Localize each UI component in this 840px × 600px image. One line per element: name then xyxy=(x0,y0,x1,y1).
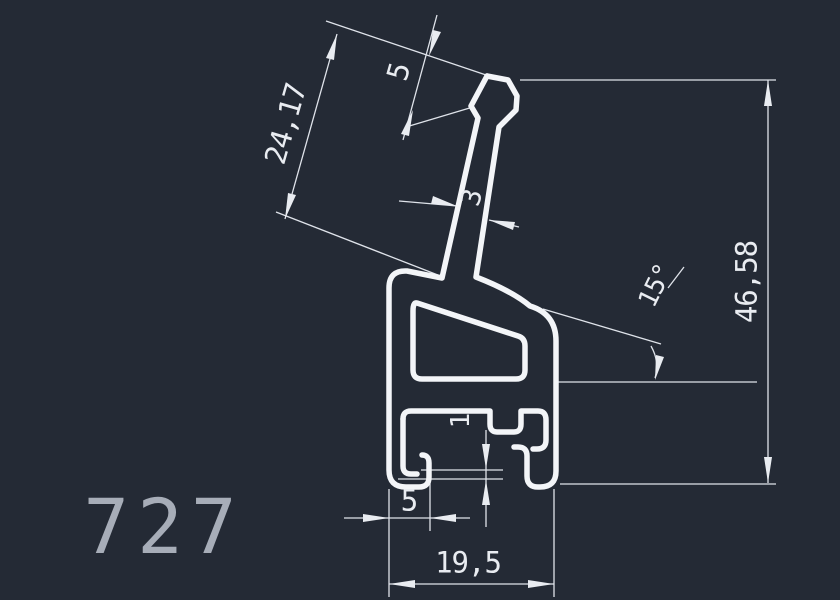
part-number-label: 727 xyxy=(83,489,244,565)
dim-label-foot-width: 5 xyxy=(401,487,417,516)
dimension-arrows xyxy=(285,30,772,588)
cad-canvas: 24,17 5 3 15° 46,58 1 5 19,5 727 xyxy=(0,0,840,600)
dim-label-overall-width: 19,5 xyxy=(435,549,501,578)
dim-label-wall-thickness: 1 xyxy=(448,414,474,429)
dim-label-total-height: 46,58 xyxy=(733,241,762,323)
